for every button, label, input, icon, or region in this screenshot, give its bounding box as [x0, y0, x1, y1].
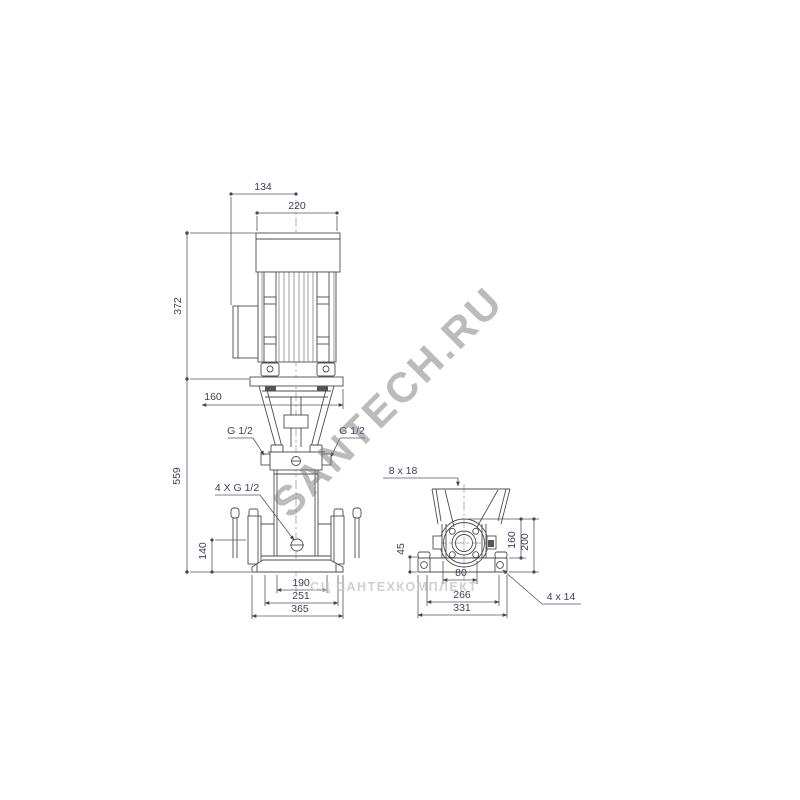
front-view: 134 220 372 559 160 [171, 181, 365, 619]
g12-boss-left [261, 454, 270, 465]
pump-base [252, 556, 343, 572]
flange-bolt-hole [473, 528, 479, 534]
8x18-label: 8 x 18 [389, 465, 418, 477]
dim-80-label: 80 [455, 567, 467, 579]
watermark-secondary: СЦ САНТЕХКОМПЛЕКТ [310, 580, 478, 594]
pump-dimensional-drawing: 134 220 372 559 160 [0, 0, 800, 800]
dim-190-label: 190 [292, 577, 310, 589]
g12-left-label: G 1/2 [227, 425, 253, 437]
dim-220: 220 [255, 200, 338, 231]
motor-stool-flange [250, 377, 343, 386]
foundation-bolt-hole [421, 562, 428, 569]
motor-feet [261, 363, 335, 376]
dim-559-label: 559 [171, 467, 183, 485]
flange-bolt-hole [449, 528, 455, 534]
dim-251-label: 251 [292, 590, 310, 602]
flange-bolt-hole [449, 552, 455, 558]
dim-365-label: 365 [291, 603, 309, 615]
coupling [284, 415, 308, 428]
callout-4x14: 4 x 14 [503, 570, 581, 604]
flange-bolt-hole [473, 552, 479, 558]
side-pump-head [432, 489, 510, 527]
dim-372-label: 372 [172, 297, 184, 315]
foundation-bolt-hole [497, 562, 504, 569]
dim-160-side-label: 160 [506, 531, 518, 549]
dim-200-label: 200 [519, 533, 531, 551]
dim-134-label: 134 [254, 181, 272, 193]
terminal-box [233, 306, 258, 358]
callout-g12-left: G 1/2 [227, 425, 264, 455]
dim-45: 45 [395, 543, 418, 574]
motor [233, 233, 340, 376]
dim-140: 140 [197, 538, 246, 573]
side-view: 45 160 200 80 266 331 8 x 18 [383, 465, 581, 618]
dim-140-label: 140 [197, 542, 209, 560]
callout-8x18: 8 x 18 [383, 465, 458, 486]
dim-220-label: 220 [288, 200, 306, 212]
4xg12-label: 4 X G 1/2 [215, 482, 260, 494]
4x14-label: 4 x 14 [547, 591, 576, 603]
dim-160-front-label: 160 [204, 391, 222, 403]
dim-331-label: 331 [453, 602, 471, 614]
drain-plug [290, 539, 304, 551]
dim-45-label: 45 [395, 543, 407, 555]
